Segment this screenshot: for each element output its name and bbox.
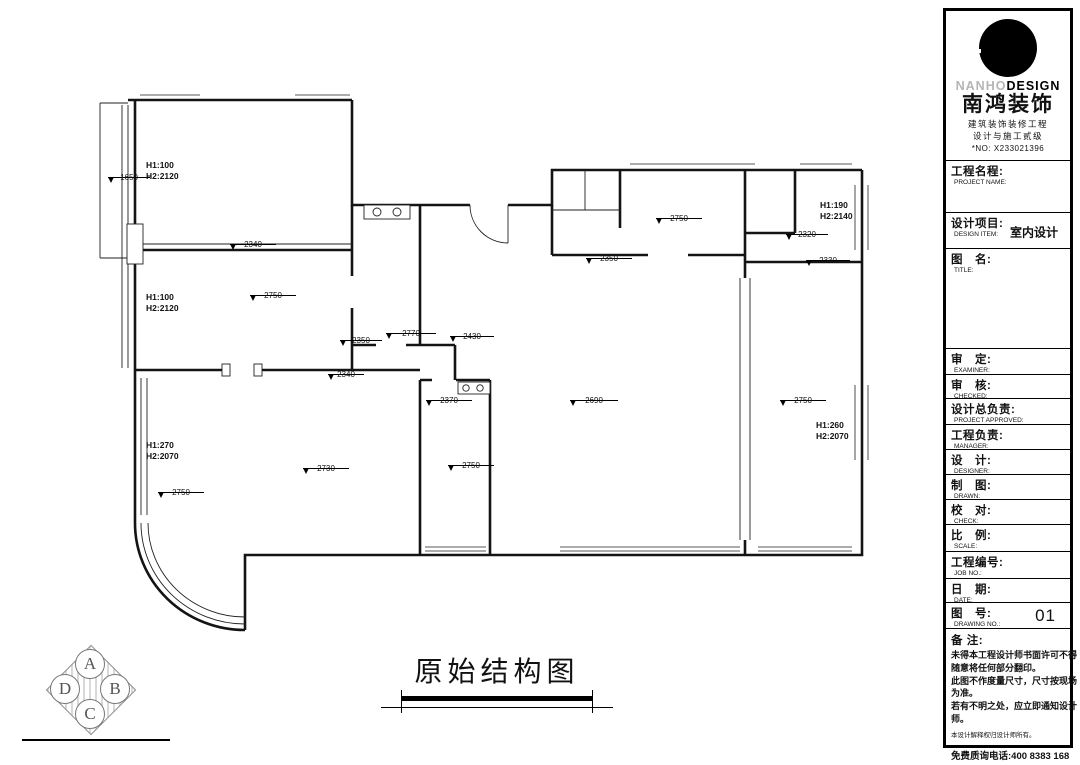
cert-line-2: 设计与施工贰级 [946, 131, 1070, 142]
field-project-name: 工程名程: PROJECT NAME: [946, 161, 1070, 213]
elevation-marker: 2750 [656, 207, 702, 219]
window-height-label: H1:190H2:2140 [820, 200, 853, 223]
elevation-marker: 2340 [230, 233, 276, 245]
title-block: NANHODESIGN 南鸿装饰 建筑装饰装修工程 设计与施工贰级 *NO: X… [943, 8, 1073, 748]
notes-label: 备 注: [951, 632, 1065, 648]
title-underline [401, 696, 593, 701]
elevation-marker: 2330 [806, 249, 850, 261]
elevation-marker: 2730 [303, 457, 349, 469]
copyright-fine-print: 本设计解释权归设计师所有。 [951, 729, 1065, 739]
elevation-marker: 2770 [386, 322, 436, 334]
logo-letter-d: D [50, 674, 80, 704]
stove-symbol [364, 205, 410, 219]
sheet-bottom-line [22, 739, 170, 741]
floor-plan: 1650 2340 2750 2350 2770 2430 2340 2370 … [0, 0, 940, 756]
door-jamb [222, 364, 230, 376]
elevation-marker: 2430 [450, 325, 494, 337]
logo-letter-b: B [100, 674, 130, 704]
field-drawing-no: 图 号: DRAWING NO.: 01 [946, 603, 1070, 629]
wall-pier [127, 224, 143, 264]
field-checked: 审 核: CHECKED: [946, 375, 1070, 399]
brand-cn: 南鸿装饰 [946, 93, 1070, 116]
elevation-marker: 2370 [426, 389, 472, 401]
window-height-label: H1:270H2:2070 [146, 440, 179, 463]
brand-en: NANHODESIGN [946, 79, 1070, 93]
logo-letter-a: A [75, 649, 105, 679]
elevation-marker: 2350 [586, 247, 632, 259]
drawing-no-value: 01 [1035, 606, 1056, 626]
window-height-label: H1:260H2:2070 [816, 420, 849, 443]
field-job-no: 工程编号: JOB NO.: [946, 552, 1070, 579]
elevation-marker: 2320 [786, 223, 828, 235]
fixture-symbols [127, 205, 490, 394]
cert-no: *NO: X233021396 [946, 144, 1070, 153]
window-height-label: H1:100H2:2120 [146, 292, 179, 315]
field-examiner: 审 定: EXAMINER: [946, 349, 1070, 375]
floor-plan-svg [0, 0, 940, 756]
elevation-marker: 2340 [328, 363, 364, 375]
elevation-marker: 2350 [340, 329, 382, 341]
corner-diamond-logo: A D B C [44, 643, 136, 735]
field-designer: 设 计: DESIGNER: [946, 450, 1070, 475]
field-manager: 工程负责: MANAGER: [946, 425, 1070, 450]
drawing-title: 原始结构图 [375, 650, 619, 690]
field-check: 校 对: CHECK: [946, 500, 1070, 525]
bay-window-arc [135, 523, 245, 630]
elevation-marker: 2750 [250, 284, 296, 296]
field-project-approved: 设计总负责: PROJECT APPROVED: [946, 399, 1070, 425]
entry-door-arc [470, 205, 508, 243]
elevation-marker: 2750 [448, 454, 494, 466]
logo-letter-c: C [75, 699, 105, 729]
field-design-item: 设计项目: DESIGN ITEM: 室内设计 [946, 213, 1070, 249]
window-height-label: H1:100H2:2120 [146, 160, 179, 183]
field-title: 图 名: TITLE: [946, 249, 1070, 349]
title-underline-thin [381, 707, 613, 708]
elevation-marker: 2690 [570, 389, 618, 401]
elevation-marker: 1650 [108, 166, 150, 178]
drawing-title-text: 原始结构图 [375, 650, 619, 690]
elevation-marker: 2750 [780, 389, 826, 401]
company-logo: NANHODESIGN 南鸿装饰 建筑装饰装修工程 设计与施工贰级 *NO: X… [946, 11, 1070, 161]
door-jamb [254, 364, 262, 376]
window-hatches [140, 95, 868, 551]
field-date: 日 期: DATE: [946, 579, 1070, 603]
hotline-phone: 免费质询电话:400 8383 168 [951, 748, 1065, 762]
notes-section: 备 注: 未得本工程设计师书面许可不得 随意将任何部分翻印。 此图不作度量尺寸，… [946, 629, 1070, 765]
detail-lines [100, 103, 750, 624]
design-item-value: 室内设计 [1001, 224, 1067, 241]
bay-window-glass [141, 523, 245, 624]
cert-line-1: 建筑装饰装修工程 [946, 119, 1070, 130]
field-drawn: 制 图: DRAWN: [946, 475, 1070, 500]
column-icon [979, 19, 1037, 77]
field-scale: 比 例: SCALE: [946, 525, 1070, 552]
walls [128, 100, 862, 630]
elevation-marker: 2750 [158, 481, 204, 493]
